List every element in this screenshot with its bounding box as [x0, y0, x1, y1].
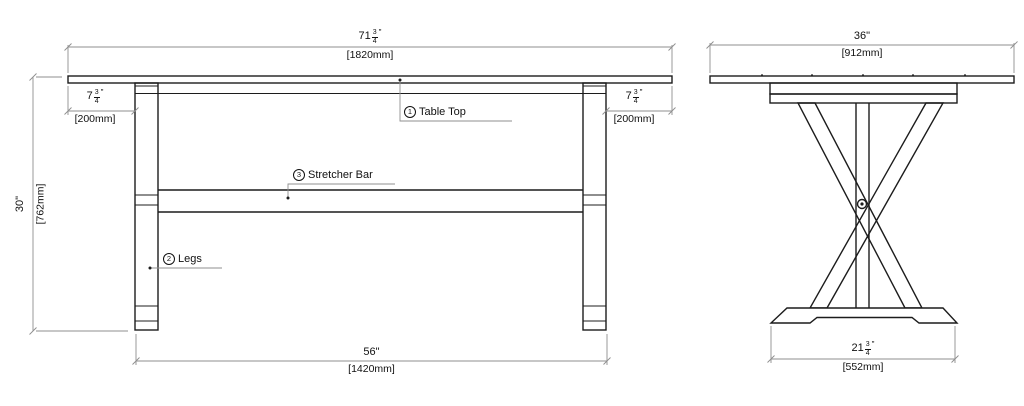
- label-table-top-text: Table Top: [419, 106, 466, 118]
- dim-front-overhang-right-mm: [200mm]: [598, 114, 670, 125]
- label-table-top: 1 Table Top: [404, 106, 466, 118]
- dim-side-width-mm: [912mm]: [710, 48, 1014, 59]
- front-foot-lines: [135, 306, 606, 321]
- side-tabletop-mark: [862, 74, 864, 76]
- dim-side-width-inches: 36": [710, 31, 1014, 43]
- dim-side-foot-mm: [552mm]: [771, 362, 955, 373]
- leader-stretcher-bar-dot: [287, 197, 290, 200]
- side-bolt-center: [860, 202, 863, 205]
- side-diagonal-brace-left: [798, 103, 922, 308]
- front-stretcher-tenon-lines: [135, 195, 606, 205]
- label-legs-text: Legs: [178, 253, 202, 265]
- side-view: [710, 74, 1014, 323]
- dim-front-overhang-left-mm: [200mm]: [58, 114, 132, 125]
- dim-front-overhang-right-inches: 734": [598, 89, 670, 105]
- circled-number-1: 1: [404, 106, 416, 118]
- side-tabletop-mark: [964, 74, 966, 76]
- dim-front-leg-span-mm: [1420mm]: [136, 364, 607, 375]
- dim-side-foot-inches: 2134": [771, 341, 955, 357]
- technical-drawing-canvas: 7134" [1820mm] 734" [200mm] 734" [200mm]…: [0, 0, 1024, 406]
- side-tabletop-mark: [811, 74, 813, 76]
- side-cleat-lower: [770, 94, 957, 103]
- dim-front-width-inches: 7134": [68, 29, 672, 45]
- leader-stretcher-bar: [288, 184, 395, 198]
- label-legs: 2 Legs: [163, 253, 202, 265]
- side-tabletop-mark: [912, 74, 914, 76]
- circled-number-2: 2: [163, 253, 175, 265]
- side-tabletop-mark: [761, 74, 763, 76]
- dim-front-leg-span-inches: 56": [136, 347, 607, 359]
- leader-legs-dot: [149, 267, 152, 270]
- dim-front-height-mm: [762mm]: [35, 184, 46, 225]
- label-stretcher-bar: 3 Stretcher Bar: [293, 169, 373, 181]
- label-stretcher-bar-text: Stretcher Bar: [308, 169, 373, 181]
- side-cleat-upper: [770, 83, 957, 94]
- front-stretcher-bar: [158, 190, 583, 212]
- side-diagonal-brace-right: [810, 103, 943, 308]
- dim-front-width-mm: [1820mm]: [68, 50, 672, 61]
- side-foot: [771, 308, 957, 323]
- front-tabletop: [68, 76, 672, 83]
- dim-front-overhang-left-inches: 734": [58, 89, 132, 105]
- circled-number-3: 3: [293, 169, 305, 181]
- leader-table-top-dot: [399, 79, 402, 82]
- dim-front-height-inches: 30": [15, 196, 27, 212]
- side-tabletop: [710, 76, 1014, 83]
- front-view: [68, 76, 672, 330]
- front-left-leg: [135, 83, 158, 330]
